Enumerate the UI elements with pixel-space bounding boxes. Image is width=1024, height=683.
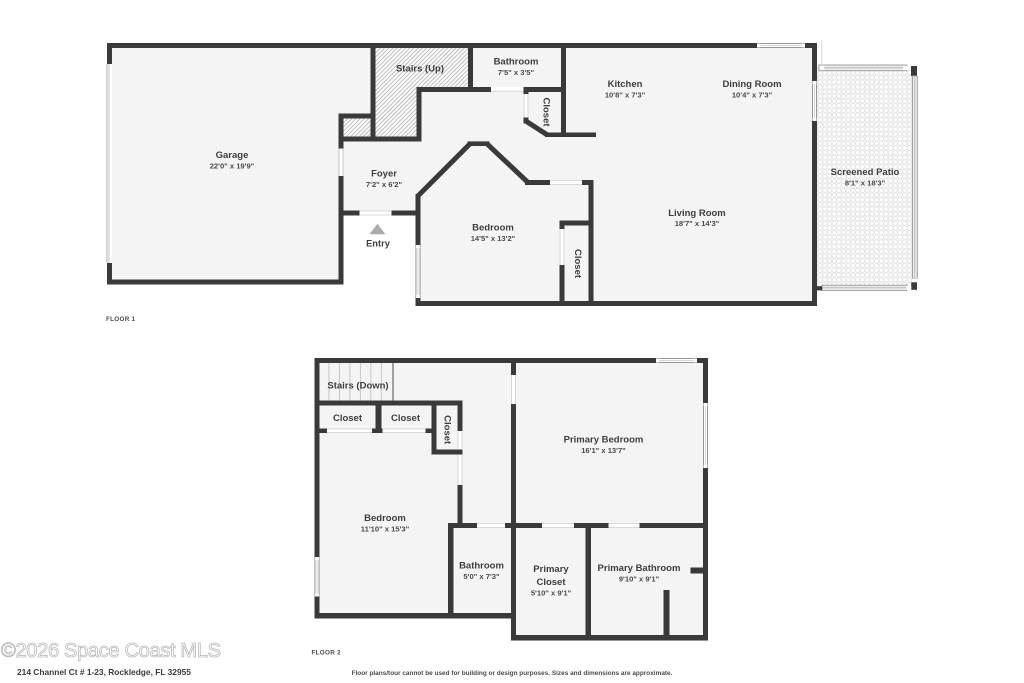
svg-text:10'4" x 7'3": 10'4" x 7'3" [732, 91, 773, 100]
svg-text:Closet: Closet [391, 413, 421, 424]
svg-text:5'10" x 9'1": 5'10" x 9'1" [531, 589, 572, 598]
svg-text:5'0" x 7'3": 5'0" x 7'3" [463, 572, 500, 581]
svg-text:©2026 Space Coast MLS: ©2026 Space Coast MLS [1, 640, 221, 662]
svg-text:Primary: Primary [533, 564, 569, 575]
svg-text:Dining Room: Dining Room [722, 79, 781, 90]
svg-text:Closet: Closet [441, 415, 452, 445]
svg-text:Bedroom: Bedroom [472, 223, 514, 234]
svg-text:214 Channel Ct # 1-23, Rockled: 214 Channel Ct # 1-23, Rockledge, FL 329… [17, 667, 191, 677]
svg-text:10'8" x 7'3": 10'8" x 7'3" [605, 91, 646, 100]
svg-text:11'10" x 15'3": 11'10" x 15'3" [361, 525, 410, 534]
svg-text:Bathroom: Bathroom [459, 561, 504, 572]
svg-text:16'1" x 13'7": 16'1" x 13'7" [581, 446, 626, 455]
svg-text:18'7" x 14'3": 18'7" x 14'3" [675, 219, 720, 228]
svg-text:Closet: Closet [333, 413, 363, 424]
svg-text:Primary Bedroom: Primary Bedroom [564, 435, 644, 446]
svg-text:Closet: Closet [572, 249, 583, 279]
svg-text:7'5" x 3'5": 7'5" x 3'5" [498, 68, 535, 77]
svg-text:Living Room: Living Room [668, 208, 726, 219]
svg-text:FLOOR 1: FLOOR 1 [106, 316, 136, 323]
svg-text:Foyer: Foyer [371, 169, 397, 180]
svg-text:22'0" x 19'9": 22'0" x 19'9" [210, 162, 255, 171]
svg-text:Screened Patio: Screened Patio [831, 167, 900, 178]
svg-text:FLOOR 2: FLOOR 2 [312, 650, 342, 657]
svg-text:Closet: Closet [536, 577, 566, 588]
svg-text:9'10" x 9'1": 9'10" x 9'1" [619, 575, 660, 584]
svg-text:7'2" x 6'2": 7'2" x 6'2" [366, 180, 403, 189]
svg-text:14'5" x 13'2": 14'5" x 13'2" [471, 234, 516, 243]
svg-text:Closet: Closet [541, 97, 552, 127]
svg-text:Entry: Entry [366, 239, 391, 249]
svg-text:Kitchen: Kitchen [608, 79, 643, 90]
svg-text:Stairs (Down): Stairs (Down) [327, 381, 388, 392]
svg-text:Primary Bathroom: Primary Bathroom [598, 563, 681, 574]
svg-text:Floor plans/tour cannot be use: Floor plans/tour cannot be used for buil… [352, 670, 673, 677]
svg-text:Bedroom: Bedroom [364, 513, 406, 524]
svg-text:Bathroom: Bathroom [494, 57, 539, 68]
svg-text:Garage: Garage [216, 150, 249, 161]
svg-text:Stairs (Up): Stairs (Up) [396, 64, 444, 75]
svg-text:8'1" x 18'3": 8'1" x 18'3" [845, 179, 886, 188]
